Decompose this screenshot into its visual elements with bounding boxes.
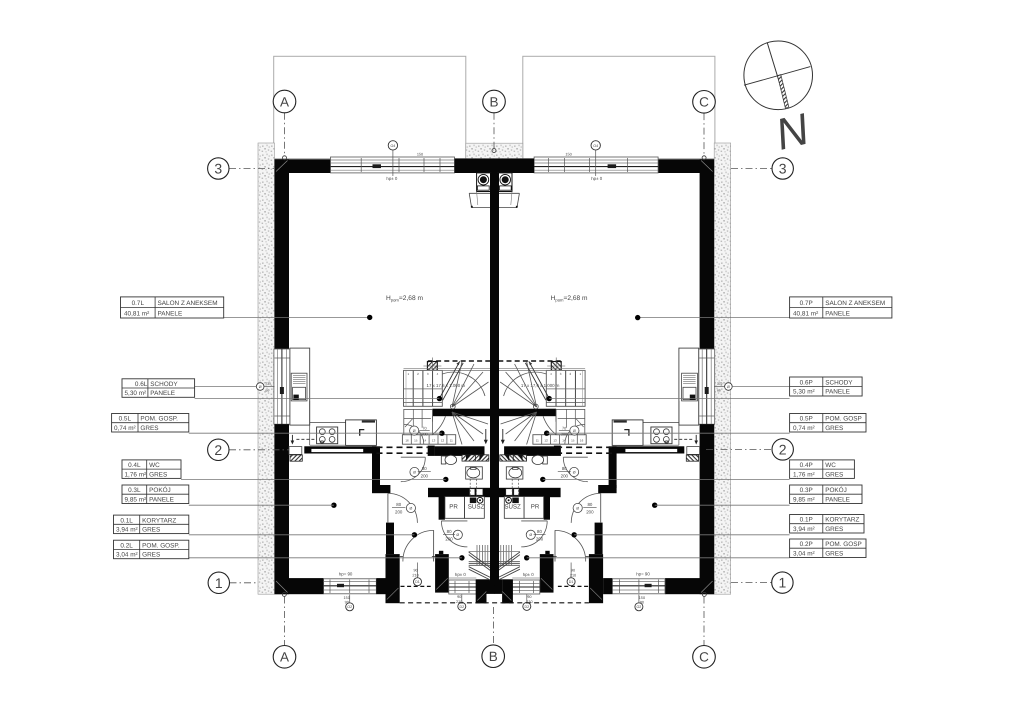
svg-text:0.2L: 0.2L (120, 542, 133, 549)
svg-text:60: 60 (717, 389, 721, 393)
svg-text:40,81 m²: 40,81 m² (793, 311, 818, 318)
svg-text:Ø: Ø (413, 429, 416, 433)
svg-text:GRES: GRES (142, 552, 160, 559)
svg-text:C: C (699, 95, 709, 110)
svg-text:17 x 17,6 x 1.000 m: 17 x 17,6 x 1.000 m (521, 383, 560, 388)
svg-text:O4: O4 (391, 144, 396, 148)
svg-text:B: B (489, 94, 498, 109)
svg-text:1: 1 (779, 575, 787, 591)
svg-text:3,94 m²: 3,94 m² (793, 526, 815, 533)
svg-text:90: 90 (457, 595, 461, 599)
svg-text:hp± 0: hp± 0 (386, 176, 398, 181)
svg-text:A: A (280, 650, 289, 665)
svg-text:13: 13 (553, 438, 557, 442)
svg-text:200: 200 (561, 433, 567, 437)
svg-text:GRES: GRES (149, 471, 167, 478)
svg-text:11: 11 (536, 438, 539, 442)
svg-text:Ø: Ø (573, 429, 576, 433)
svg-text:GRES: GRES (825, 471, 843, 478)
svg-text:1: 1 (215, 575, 223, 591)
svg-text:O2: O2 (637, 605, 642, 609)
svg-text:D1: D1 (415, 580, 420, 584)
svg-text:11: 11 (450, 438, 453, 442)
svg-text:PANELE: PANELE (825, 389, 850, 396)
svg-text:O4: O4 (593, 144, 598, 148)
svg-text:150: 150 (565, 152, 571, 156)
svg-text:3: 3 (779, 161, 787, 177)
svg-text:GRES: GRES (825, 526, 843, 533)
svg-text:0,74 m²: 0,74 m² (114, 425, 136, 432)
svg-text:O2: O2 (347, 605, 352, 609)
svg-text:16: 16 (580, 438, 584, 442)
svg-text:90: 90 (527, 595, 531, 599)
svg-text:14: 14 (423, 438, 427, 442)
svg-text:Ø: Ø (456, 533, 459, 537)
svg-text:0.1L: 0.1L (120, 517, 133, 524)
svg-text:POM. GOSP: POM. GOSP (825, 416, 862, 423)
svg-text:0.4P: 0.4P (800, 462, 813, 469)
svg-text:9,85 m²: 9,85 m² (125, 496, 147, 503)
svg-text:1,76 m²: 1,76 m² (125, 471, 147, 478)
svg-text:Ø: Ø (727, 385, 730, 389)
svg-text:Ø: Ø (529, 533, 532, 537)
svg-text:PANELE: PANELE (825, 311, 850, 318)
svg-text:90: 90 (571, 569, 575, 573)
svg-text:0.7P: 0.7P (800, 300, 813, 307)
svg-text:70: 70 (422, 426, 426, 430)
svg-text:225: 225 (717, 382, 723, 386)
svg-text:Ø: Ø (413, 470, 416, 474)
svg-text:SUSZ: SUSZ (468, 504, 485, 511)
svg-text:3,94 m²: 3,94 m² (116, 527, 138, 534)
svg-text:210: 210 (570, 573, 576, 577)
svg-text:SCHODY: SCHODY (150, 381, 178, 388)
svg-text:0.5P: 0.5P (800, 416, 813, 423)
svg-text:0.4L: 0.4L (128, 462, 141, 469)
svg-text:90: 90 (345, 601, 349, 605)
svg-text:PANELE: PANELE (158, 311, 183, 318)
svg-text:200: 200 (421, 473, 429, 478)
svg-text:14: 14 (562, 438, 566, 442)
svg-text:POKÓJ: POKÓJ (825, 486, 847, 494)
svg-text:80: 80 (447, 529, 452, 534)
svg-text:15: 15 (414, 438, 418, 442)
svg-text:hp= 90: hp= 90 (339, 572, 353, 577)
svg-text:16: 16 (405, 438, 409, 442)
svg-text:150: 150 (417, 152, 423, 156)
svg-text:B: B (489, 649, 498, 664)
svg-text:200: 200 (561, 473, 569, 478)
svg-text:40,81 m²: 40,81 m² (124, 311, 149, 318)
svg-text:GRES: GRES (140, 425, 158, 432)
svg-text:80: 80 (587, 502, 592, 507)
svg-text:0.7L: 0.7L (132, 300, 145, 307)
svg-text:60: 60 (266, 389, 270, 393)
svg-text:SCHODY: SCHODY (825, 380, 853, 387)
svg-text:0.6L: 0.6L (135, 381, 148, 388)
svg-text:PANELE: PANELE (150, 390, 175, 397)
svg-text:200: 200 (586, 509, 594, 514)
svg-text:D1: D1 (569, 580, 574, 584)
svg-text:SUSZ: SUSZ (504, 504, 521, 511)
svg-text:200: 200 (395, 509, 403, 514)
svg-text:A: A (280, 94, 289, 109)
svg-text:3,04 m²: 3,04 m² (793, 550, 815, 557)
svg-text:80: 80 (396, 502, 401, 507)
svg-text:GRES: GRES (142, 527, 160, 534)
svg-text:Ø: Ø (573, 470, 576, 474)
svg-text:Ø: Ø (410, 506, 413, 510)
svg-text:90: 90 (413, 569, 417, 573)
svg-text:17 x 17,6 x 1.000 m: 17 x 17,6 x 1.000 m (427, 383, 466, 388)
svg-text:210: 210 (526, 600, 532, 604)
svg-text:PR: PR (449, 504, 458, 511)
svg-text:1,76 m²: 1,76 m² (793, 471, 815, 478)
svg-text:70: 70 (562, 426, 566, 430)
svg-text:WC: WC (149, 462, 160, 469)
svg-text:hp± 0: hp± 0 (523, 572, 535, 577)
svg-text:210: 210 (412, 573, 418, 577)
svg-text:0.3L: 0.3L (128, 487, 141, 494)
svg-text:3,04 m²: 3,04 m² (116, 552, 138, 559)
svg-text:0,74 m²: 0,74 m² (793, 425, 815, 432)
svg-text:POKÓJ: POKÓJ (149, 486, 171, 494)
svg-text:KORYTARZ: KORYTARZ (142, 517, 176, 524)
svg-text:3: 3 (214, 161, 222, 177)
svg-text:0.1P: 0.1P (800, 517, 813, 524)
svg-text:12: 12 (441, 438, 445, 442)
svg-text:200: 200 (445, 536, 453, 541)
svg-text:0.6P: 0.6P (800, 380, 813, 387)
svg-text:WC: WC (825, 462, 836, 469)
svg-text:13: 13 (432, 438, 436, 442)
svg-text:9,85 m²: 9,85 m² (793, 496, 815, 503)
svg-text:90: 90 (640, 601, 644, 605)
svg-text:0.3P: 0.3P (800, 487, 813, 494)
svg-text:PR: PR (531, 504, 540, 511)
svg-text:200: 200 (421, 433, 427, 437)
svg-text:0.5L: 0.5L (119, 416, 132, 423)
svg-text:PANELE: PANELE (149, 496, 174, 503)
svg-text:GRES: GRES (825, 425, 843, 432)
svg-text:C: C (699, 650, 709, 665)
svg-text:200: 200 (536, 536, 544, 541)
svg-text:D2: D2 (524, 605, 529, 609)
svg-text:80: 80 (537, 529, 542, 534)
svg-text:0.2P: 0.2P (800, 541, 813, 548)
svg-text:2: 2 (779, 441, 787, 457)
svg-text:POM. GOSP.: POM. GOSP. (140, 416, 178, 423)
svg-text:hp± 0: hp± 0 (455, 572, 467, 577)
svg-text:KORYTARZ: KORYTARZ (825, 517, 859, 524)
svg-text:225: 225 (266, 382, 272, 386)
svg-text:150: 150 (639, 596, 645, 600)
svg-text:GRES: GRES (825, 550, 843, 557)
svg-text:hp± 0: hp± 0 (591, 176, 603, 181)
svg-text:5,30 m²: 5,30 m² (125, 390, 147, 397)
svg-text:SALON Z ANEKSEM: SALON Z ANEKSEM (825, 300, 885, 307)
svg-text:D2: D2 (459, 605, 464, 609)
svg-text:SALON Z ANEKSEM: SALON Z ANEKSEM (158, 300, 218, 307)
svg-text:POM. GOSP: POM. GOSP (825, 541, 862, 548)
svg-text:150: 150 (344, 596, 350, 600)
svg-text:POM. GOSP.: POM. GOSP. (142, 542, 180, 549)
svg-text:12: 12 (544, 438, 548, 442)
svg-text:hp= 90: hp= 90 (636, 572, 650, 577)
svg-text:15: 15 (571, 438, 575, 442)
svg-text:Ø: Ø (259, 385, 262, 389)
svg-text:2: 2 (214, 442, 222, 458)
svg-text:PANELE: PANELE (825, 496, 850, 503)
svg-text:5,30 m²: 5,30 m² (793, 389, 815, 396)
svg-text:80: 80 (422, 466, 427, 471)
svg-text:Ø: Ø (576, 506, 579, 510)
svg-text:210: 210 (456, 600, 462, 604)
svg-text:80: 80 (562, 466, 567, 471)
